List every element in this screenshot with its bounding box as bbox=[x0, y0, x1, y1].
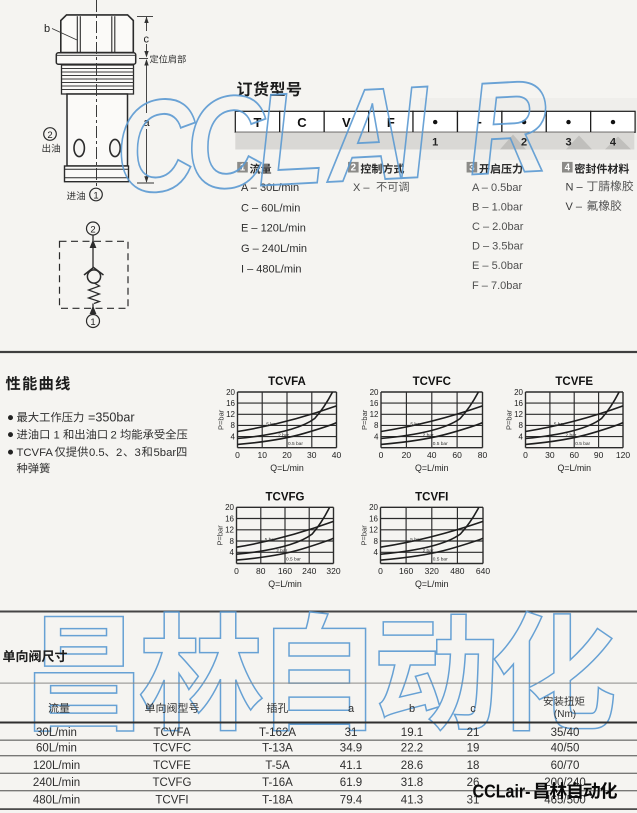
svg-text:1: 1 bbox=[90, 317, 95, 328]
svg-text:8: 8 bbox=[231, 421, 236, 430]
svg-text:640: 640 bbox=[476, 566, 490, 576]
svg-text:TCVFE: TCVFE bbox=[555, 376, 593, 388]
svg-text:5 bar: 5 bar bbox=[410, 537, 421, 543]
svg-text:2 bar: 2 bar bbox=[276, 548, 287, 554]
svg-text:b: b bbox=[44, 23, 50, 35]
svg-text:E – 120L/min: E – 120L/min bbox=[241, 223, 306, 235]
svg-text:30: 30 bbox=[307, 450, 317, 460]
svg-text:4: 4 bbox=[610, 137, 617, 149]
svg-text:CCLair-: CCLair- bbox=[473, 781, 531, 802]
svg-text:5 bar: 5 bar bbox=[266, 422, 277, 428]
svg-text:N –: N – bbox=[566, 181, 584, 193]
svg-text:20: 20 bbox=[226, 388, 235, 397]
svg-text:TCVFA: TCVFA bbox=[17, 447, 54, 459]
svg-text:0: 0 bbox=[235, 450, 240, 460]
svg-text:c: c bbox=[144, 34, 150, 46]
svg-text:2: 2 bbox=[116, 447, 122, 459]
svg-text:240: 240 bbox=[302, 566, 316, 576]
svg-text:60: 60 bbox=[570, 450, 580, 460]
svg-text:TCVFG: TCVFG bbox=[153, 777, 192, 789]
svg-text:320: 320 bbox=[425, 566, 439, 576]
svg-text:28.6: 28.6 bbox=[401, 760, 423, 772]
svg-text:P=bar: P=bar bbox=[505, 409, 514, 430]
svg-text:320: 320 bbox=[326, 566, 340, 576]
svg-text:480L/min: 480L/min bbox=[33, 795, 80, 807]
svg-text:3: 3 bbox=[565, 137, 571, 149]
svg-text:0.5 bar: 0.5 bar bbox=[433, 557, 448, 563]
svg-text:12: 12 bbox=[369, 526, 378, 535]
svg-text:40: 40 bbox=[427, 450, 437, 460]
svg-text:2 bar: 2 bar bbox=[565, 433, 576, 439]
svg-text:2: 2 bbox=[111, 430, 117, 442]
svg-text:TCVFA: TCVFA bbox=[268, 376, 306, 388]
svg-text:P=bar: P=bar bbox=[217, 409, 226, 430]
svg-text:T-16A: T-16A bbox=[262, 777, 293, 789]
svg-text:80: 80 bbox=[256, 566, 266, 576]
svg-text:16: 16 bbox=[370, 399, 379, 408]
svg-text:4: 4 bbox=[519, 432, 524, 441]
svg-text:16: 16 bbox=[514, 399, 523, 408]
svg-text:120: 120 bbox=[616, 450, 630, 460]
svg-text:TCVFA: TCVFA bbox=[153, 727, 190, 739]
svg-text:Q=L/min: Q=L/min bbox=[270, 463, 304, 473]
svg-text:61.9: 61.9 bbox=[340, 777, 362, 789]
svg-text:Q=L/min: Q=L/min bbox=[268, 579, 302, 589]
svg-text:Q=L/min: Q=L/min bbox=[415, 579, 449, 589]
svg-text:0: 0 bbox=[523, 450, 528, 460]
svg-text:2: 2 bbox=[47, 130, 52, 141]
svg-text:5bar: 5bar bbox=[154, 447, 177, 459]
svg-text:41.1: 41.1 bbox=[340, 760, 362, 772]
svg-text:a: a bbox=[348, 703, 355, 715]
svg-text:2: 2 bbox=[90, 224, 95, 235]
svg-text:30: 30 bbox=[545, 450, 555, 460]
svg-text:2 bar: 2 bar bbox=[278, 433, 289, 439]
svg-text:79.4: 79.4 bbox=[340, 795, 363, 807]
svg-text:160: 160 bbox=[399, 566, 413, 576]
svg-text:TCVFE: TCVFE bbox=[153, 760, 191, 772]
svg-text:240L/min: 240L/min bbox=[33, 777, 80, 789]
svg-text:4: 4 bbox=[231, 432, 236, 441]
svg-text:20: 20 bbox=[514, 388, 523, 397]
svg-text:Q=L/min: Q=L/min bbox=[415, 463, 449, 473]
svg-text:12: 12 bbox=[514, 410, 523, 419]
svg-text:16: 16 bbox=[369, 514, 378, 523]
svg-text:12: 12 bbox=[225, 526, 234, 535]
svg-text:8: 8 bbox=[374, 537, 379, 546]
svg-text:TCVFI: TCVFI bbox=[415, 491, 448, 503]
svg-text:1: 1 bbox=[432, 137, 438, 149]
svg-text:21: 21 bbox=[467, 727, 480, 739]
svg-text:8: 8 bbox=[230, 537, 235, 546]
svg-text:18: 18 bbox=[467, 760, 480, 772]
svg-text:4: 4 bbox=[374, 548, 379, 557]
svg-text:TCVFI: TCVFI bbox=[155, 795, 188, 807]
svg-text:0: 0 bbox=[378, 566, 383, 576]
svg-text:30L/min: 30L/min bbox=[36, 727, 77, 739]
svg-text:40/50: 40/50 bbox=[551, 743, 580, 755]
svg-text:34.9: 34.9 bbox=[340, 743, 362, 755]
svg-text:0.5 bar: 0.5 bar bbox=[288, 441, 303, 447]
svg-text:22.2: 22.2 bbox=[401, 743, 423, 755]
svg-text:4: 4 bbox=[230, 548, 235, 557]
svg-text:12: 12 bbox=[226, 410, 235, 419]
svg-text:2 bar: 2 bar bbox=[423, 433, 434, 439]
svg-text:19: 19 bbox=[467, 743, 480, 755]
svg-text:T-162A: T-162A bbox=[259, 727, 296, 739]
svg-text:F – 7.0bar: F – 7.0bar bbox=[472, 280, 522, 292]
svg-text:B – 1.0bar: B – 1.0bar bbox=[472, 201, 523, 213]
svg-text:I – 480L/min: I – 480L/min bbox=[241, 264, 302, 276]
svg-text:P=bar: P=bar bbox=[216, 525, 225, 546]
svg-text:0.5: 0.5 bbox=[89, 447, 105, 459]
svg-text:90: 90 bbox=[594, 450, 604, 460]
svg-text:1: 1 bbox=[54, 430, 60, 442]
svg-text:41.3: 41.3 bbox=[401, 795, 423, 807]
svg-text:3: 3 bbox=[135, 447, 141, 459]
svg-text:5 bar: 5 bar bbox=[265, 537, 276, 543]
svg-text:31: 31 bbox=[345, 727, 358, 739]
svg-text:TCVFG: TCVFG bbox=[266, 491, 305, 503]
svg-text:P=bar: P=bar bbox=[360, 409, 369, 430]
svg-text:2 bar: 2 bar bbox=[423, 548, 434, 554]
svg-text:20: 20 bbox=[402, 450, 412, 460]
svg-text:20: 20 bbox=[282, 450, 292, 460]
svg-text:c: c bbox=[470, 703, 476, 715]
svg-text:4: 4 bbox=[374, 432, 379, 441]
svg-text:35/40: 35/40 bbox=[551, 727, 580, 739]
svg-text:60L/min: 60L/min bbox=[36, 743, 77, 755]
svg-text:0: 0 bbox=[379, 450, 384, 460]
svg-text:5 bar: 5 bar bbox=[554, 422, 565, 428]
svg-text:19.1: 19.1 bbox=[401, 727, 423, 739]
svg-text:G – 240L/min: G – 240L/min bbox=[241, 243, 307, 255]
svg-text:0.5 bar: 0.5 bar bbox=[286, 557, 301, 563]
svg-text:20: 20 bbox=[370, 388, 379, 397]
svg-text:Q=L/min: Q=L/min bbox=[558, 463, 592, 473]
svg-text:b: b bbox=[409, 703, 415, 715]
svg-text:D – 3.5bar: D – 3.5bar bbox=[472, 241, 524, 253]
svg-text:40: 40 bbox=[332, 450, 342, 460]
svg-text:C – 2.0bar: C – 2.0bar bbox=[472, 221, 524, 233]
svg-text:8: 8 bbox=[519, 421, 524, 430]
svg-text:16: 16 bbox=[225, 514, 234, 523]
svg-text:(Nm): (Nm) bbox=[554, 709, 576, 720]
svg-text:80: 80 bbox=[478, 450, 488, 460]
svg-text:8: 8 bbox=[374, 421, 379, 430]
svg-text:V –: V – bbox=[566, 201, 583, 213]
svg-text:E – 5.0bar: E – 5.0bar bbox=[472, 260, 523, 272]
svg-text:T-13A: T-13A bbox=[262, 743, 293, 755]
svg-text:160: 160 bbox=[278, 566, 292, 576]
svg-text:20: 20 bbox=[225, 503, 234, 512]
svg-text:16: 16 bbox=[226, 399, 235, 408]
svg-text:P=bar: P=bar bbox=[360, 525, 369, 546]
svg-text:CCLAIR: CCLAIR bbox=[112, 51, 551, 221]
svg-text:10: 10 bbox=[258, 450, 268, 460]
svg-text:31.8: 31.8 bbox=[401, 777, 423, 789]
svg-text:60/70: 60/70 bbox=[551, 760, 580, 772]
svg-text:120L/min: 120L/min bbox=[33, 760, 80, 772]
svg-text:=350bar: =350bar bbox=[88, 410, 135, 424]
svg-text:TCVFC: TCVFC bbox=[413, 376, 451, 388]
svg-text:TCVFC: TCVFC bbox=[153, 743, 191, 755]
svg-text:0: 0 bbox=[234, 566, 239, 576]
svg-text:4: 4 bbox=[565, 163, 571, 174]
svg-text:5 bar: 5 bar bbox=[410, 422, 421, 428]
svg-text:60: 60 bbox=[452, 450, 462, 460]
svg-text:T-5A: T-5A bbox=[265, 760, 290, 772]
svg-text:12: 12 bbox=[370, 410, 379, 419]
svg-text:0.5 bar: 0.5 bar bbox=[575, 441, 590, 447]
svg-text:20: 20 bbox=[369, 503, 378, 512]
svg-text:480: 480 bbox=[450, 566, 464, 576]
svg-text:T-18A: T-18A bbox=[262, 795, 293, 807]
svg-text:1: 1 bbox=[93, 190, 98, 201]
svg-text:0.5 bar: 0.5 bar bbox=[433, 441, 448, 447]
